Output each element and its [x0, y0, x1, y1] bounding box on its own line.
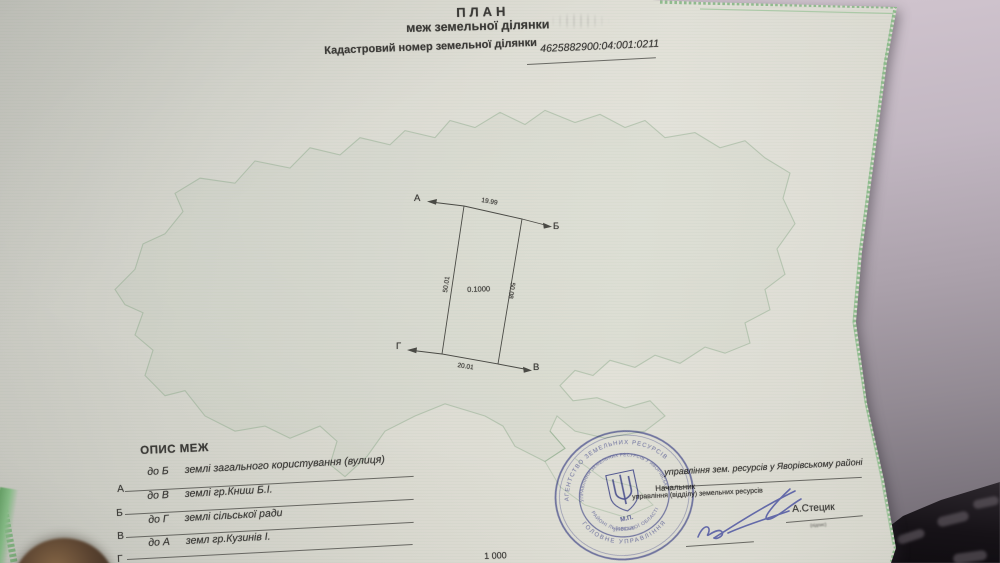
arrowhead-a: [427, 199, 437, 205]
photo-of-land-plan-document: ПЛАН меж земельної ділянки Кадастровий н…: [0, 0, 1000, 563]
corner-label-a: А: [414, 193, 420, 204]
parcel-area-label: 0.1000: [467, 284, 490, 294]
faint-pencil-smudge: [545, 12, 611, 30]
stamp-mp: М.П.: [620, 514, 634, 524]
corner-letter: Г: [117, 554, 123, 563]
scale-note: 1 000: [484, 550, 507, 561]
document-paper: ПЛАН меж земельної ділянки Кадастровий н…: [0, 0, 1000, 563]
arrowhead-v: [523, 367, 532, 373]
trident-icon: [606, 470, 641, 514]
boundary-to: до Г: [148, 513, 169, 526]
corner-letter: А: [117, 484, 124, 495]
corner-letter: В: [117, 531, 124, 542]
boundary-to: до А: [148, 536, 170, 549]
corner-label-b: Б: [553, 221, 559, 232]
arrowhead-g: [407, 347, 417, 353]
corner-label-v: В: [533, 362, 539, 373]
corner-letter: Б: [116, 508, 123, 519]
arrowhead-b: [543, 223, 552, 229]
signature: [688, 482, 838, 547]
stamp-number: 31989130: [612, 526, 635, 534]
boundary-to: до В: [147, 489, 169, 502]
boundary-to: до Б: [147, 465, 169, 478]
paper-wrap: ПЛАН меж земельної ділянки Кадастровий н…: [0, 0, 1000, 563]
corner-label-g: Г: [396, 341, 401, 352]
